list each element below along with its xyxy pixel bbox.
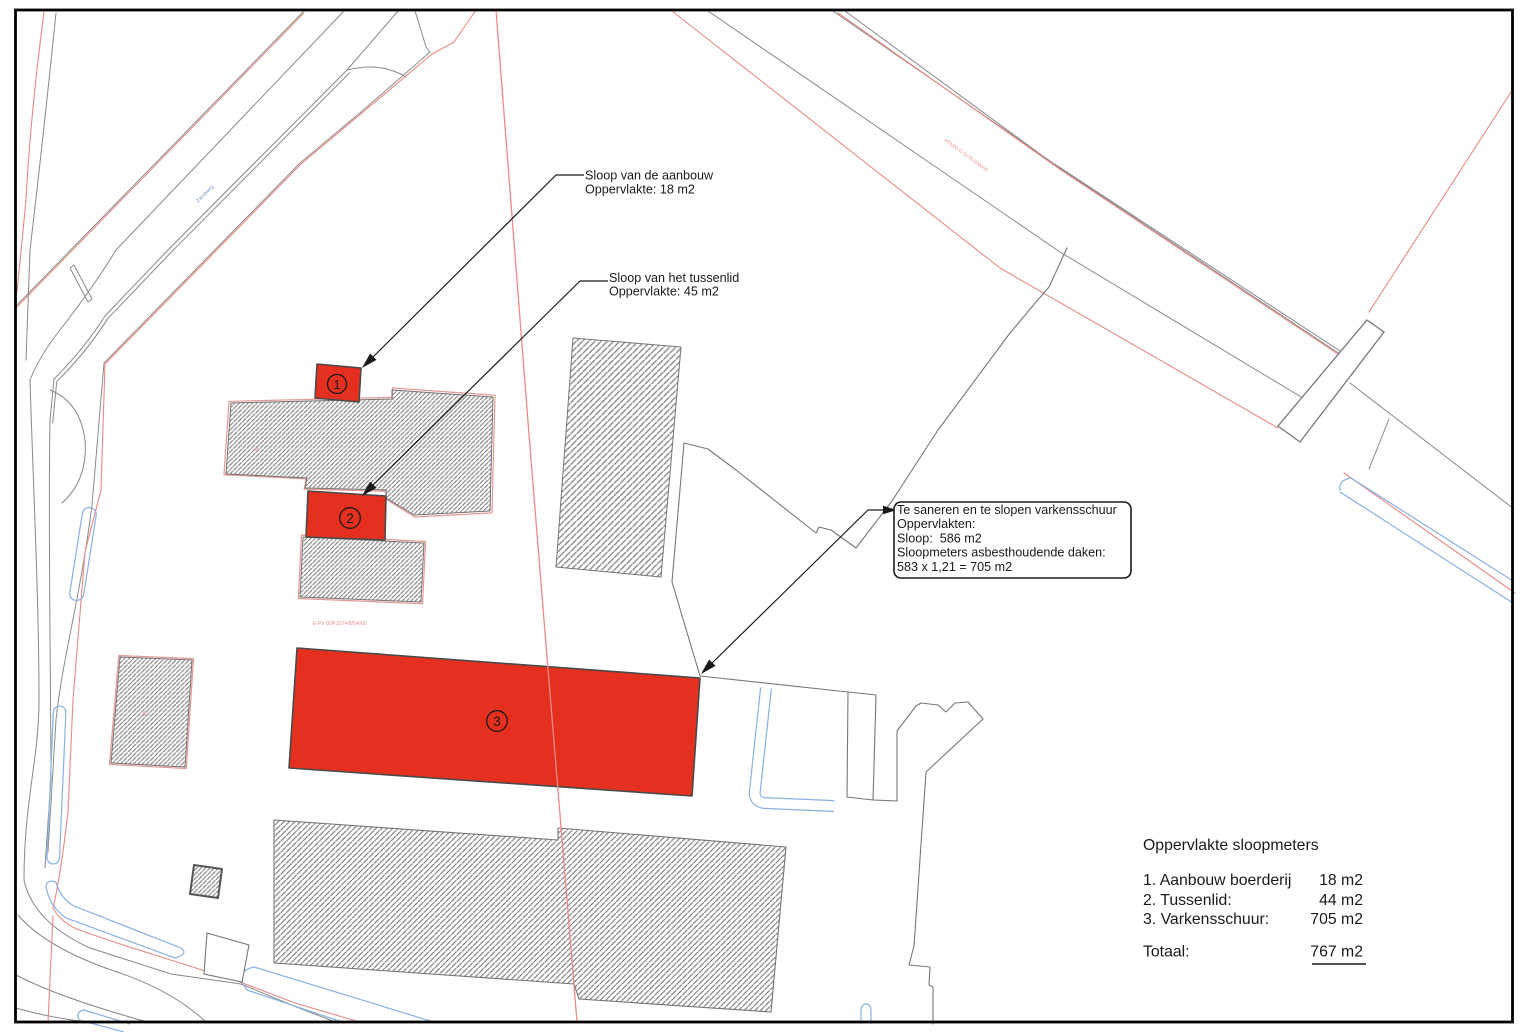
svg-text:18 m2: 18 m2 xyxy=(1319,872,1363,889)
svg-text:Oppervlakten:: Oppervlakten: xyxy=(897,517,975,531)
svg-text:Totaal:: Totaal: xyxy=(1143,944,1190,961)
svg-text:2. Tussenlid:: 2. Tussenlid: xyxy=(1143,892,1232,909)
svg-text:Sloop: 586 m2: Sloop: 586 m2 xyxy=(897,532,982,546)
svg-text:Oppervlakte: 18 m2: Oppervlakte: 18 m2 xyxy=(585,183,695,197)
svg-text:Te saneren en te slopen varken: Te saneren en te slopen varkensschuur xyxy=(897,503,1117,517)
svg-text:2: 2 xyxy=(346,511,354,526)
svg-text:1. Aanbouw boerderij: 1. Aanbouw boerderij xyxy=(1143,872,1291,889)
svg-text:44 m2: 44 m2 xyxy=(1319,892,1363,909)
svg-text:Sloop van de aanbouw: Sloop van de aanbouw xyxy=(585,169,714,183)
svg-text:Oppervlakte sloopmeters: Oppervlakte sloopmeters xyxy=(1143,837,1319,854)
svg-text:3. Varkensschuur:: 3. Varkensschuur: xyxy=(1143,911,1269,928)
svg-text:Sloop van het tussenlid: Sloop van het tussenlid xyxy=(609,271,739,285)
svg-text:Sloopmeters asbesthoudende dak: Sloopmeters asbesthoudende daken: xyxy=(897,546,1106,560)
svg-text:Oppervlakte: 45 m2: Oppervlakte: 45 m2 xyxy=(609,285,719,299)
svg-text:767 m2: 767 m2 xyxy=(1310,944,1363,961)
svg-text:E-PV 00P 3274/8/54000: E-PV 00P 3274/8/54000 xyxy=(313,621,367,627)
svg-text:3: 3 xyxy=(493,714,501,729)
svg-text:1: 1 xyxy=(333,377,340,392)
svg-text:583 x 1,21 = 705 m2: 583 x 1,21 = 705 m2 xyxy=(897,560,1012,574)
svg-text:705 m2: 705 m2 xyxy=(1310,911,1363,928)
